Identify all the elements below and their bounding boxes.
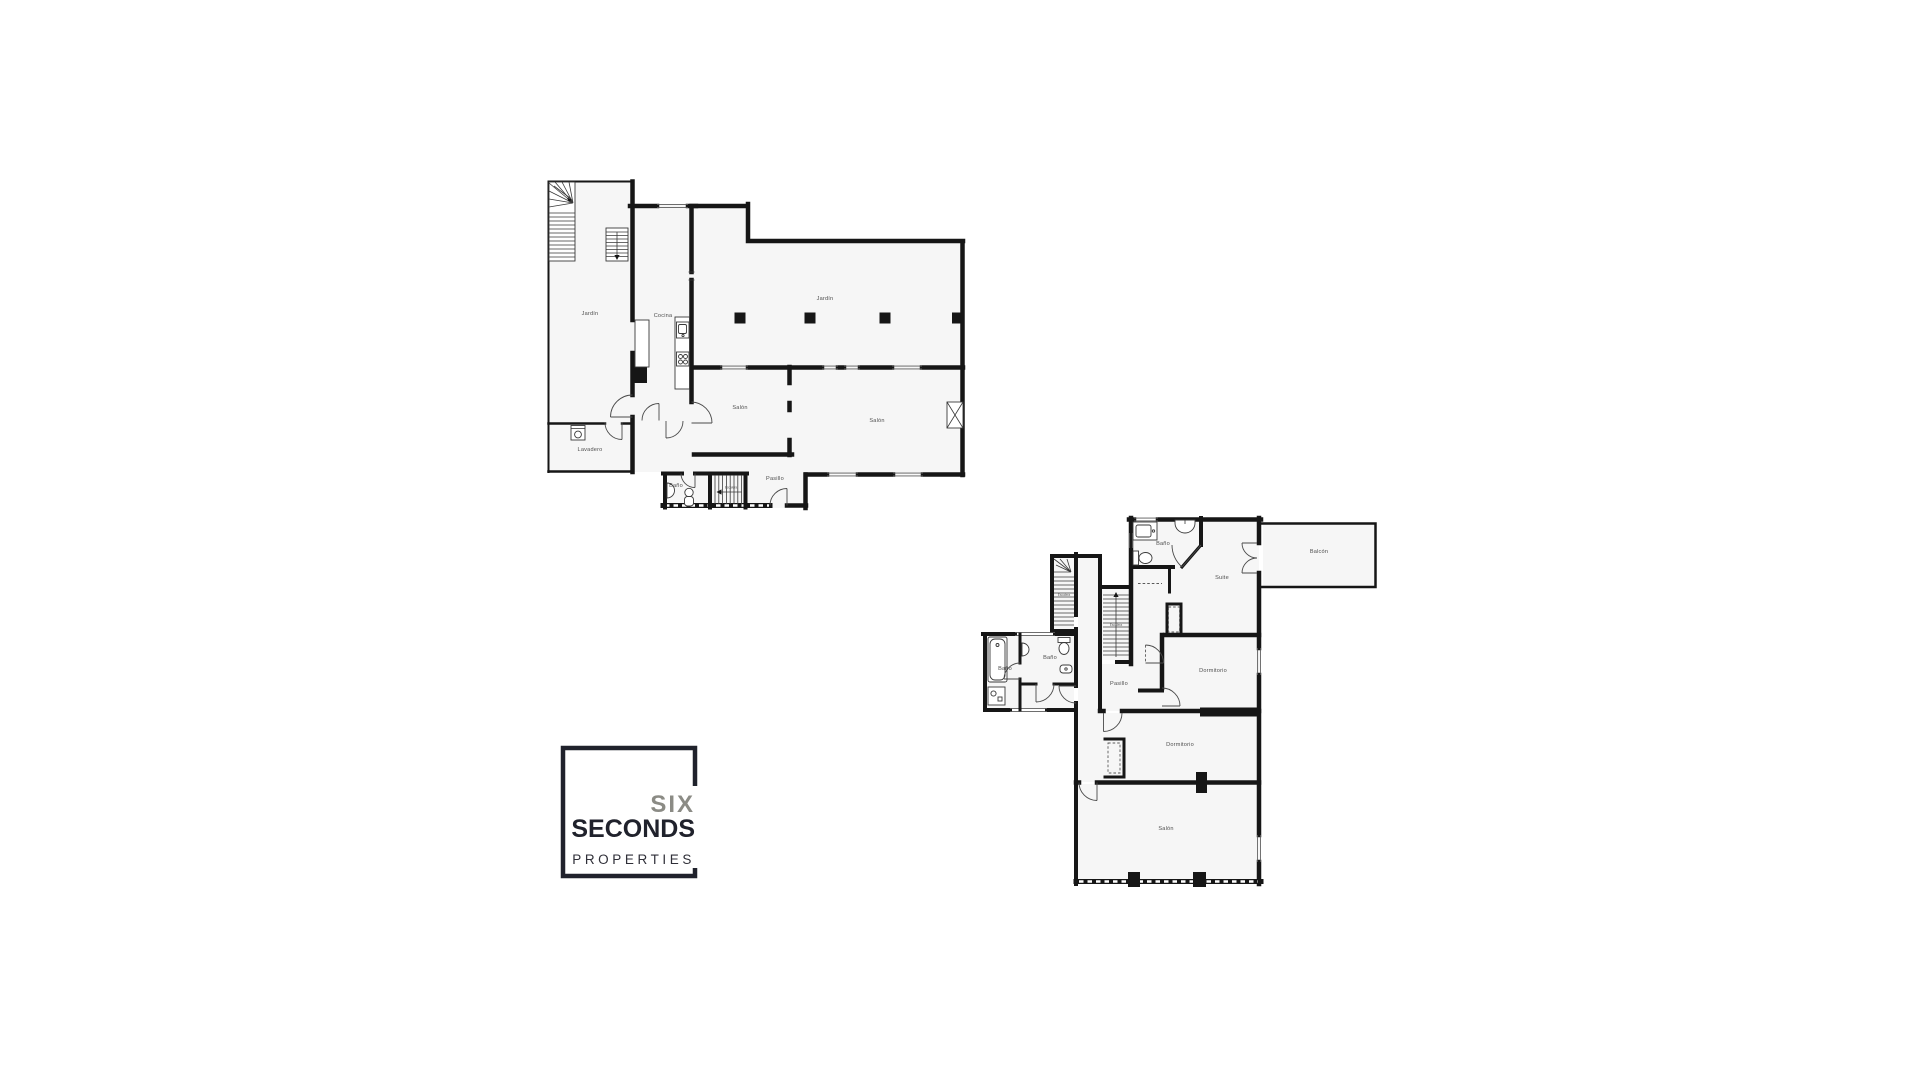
room-label-lavadero: Lavadero	[578, 447, 603, 453]
ground-floor-plan: Escalera	[543, 177, 967, 511]
kitchen-sink-icon	[677, 322, 690, 338]
listing-image-canvas: Escalera	[0, 0, 1920, 1080]
salon-pillar-right	[1193, 872, 1206, 887]
washing-machine-icon	[571, 426, 585, 441]
salon-pillar-left	[1128, 872, 1140, 887]
logo-text-seconds: SECONDS	[571, 817, 695, 842]
room-label-jardin-top: Jardín	[817, 296, 834, 302]
salon-pillar-top	[1196, 772, 1207, 793]
room-label-jardin-left: Jardín	[582, 311, 599, 317]
toilet-icon	[685, 488, 694, 506]
garden-small-stairs-icon	[606, 228, 628, 261]
room-label-escalera-left: Escalera	[1058, 593, 1071, 597]
room-label-cocina: Cocina	[654, 313, 673, 319]
room-label-salon-mid: Salón	[732, 405, 747, 411]
room-label-bano-left: Baño	[998, 666, 1012, 672]
room-label-salon-right: Salón	[869, 418, 884, 424]
bidet-icon	[1060, 665, 1072, 673]
logo-text-properties: PROPERTIES	[572, 853, 695, 867]
room-label-pasillo-gf: Pasillo	[766, 476, 784, 482]
room-label-bano-gf: Baño	[669, 483, 683, 489]
washbasin-counter-icon	[988, 687, 1005, 705]
room-label-balcon: Balcón	[1310, 549, 1328, 555]
upper-bath-sink-icon	[1133, 522, 1157, 540]
room-label-dormitorio-bottom: Dormitorio	[1166, 742, 1194, 748]
window-box-icon	[947, 402, 963, 428]
upper-floor-plan: Escalera Escalera	[980, 515, 1412, 905]
stove-icon	[677, 352, 690, 366]
chimney-block	[634, 366, 647, 383]
wardrobe-block	[1200, 708, 1258, 717]
room-label-bano-mid: Baño	[1043, 655, 1057, 661]
room-label-salon-uf: Salón	[1158, 826, 1173, 832]
garden-winder-stairs-icon	[549, 182, 575, 261]
room-label-suite: Suite	[1215, 575, 1229, 581]
logo-text-six: SIX	[650, 793, 695, 817]
brand-logo: SIX SECONDS PROPERTIES	[559, 744, 699, 880]
room-label-pasillo-uf: Pasillo	[1110, 681, 1128, 687]
room-label-escalera-right: Escalera	[1110, 623, 1123, 627]
upper-bath-toilet-icon	[1133, 551, 1152, 565]
room-label-escalera-gf: Escalera	[725, 486, 738, 490]
room-label-bano-top: Baño	[1156, 541, 1170, 547]
room-label-dormitorio-top: Dormitorio	[1199, 668, 1227, 674]
mid-bath-toilet-icon	[1058, 638, 1070, 655]
